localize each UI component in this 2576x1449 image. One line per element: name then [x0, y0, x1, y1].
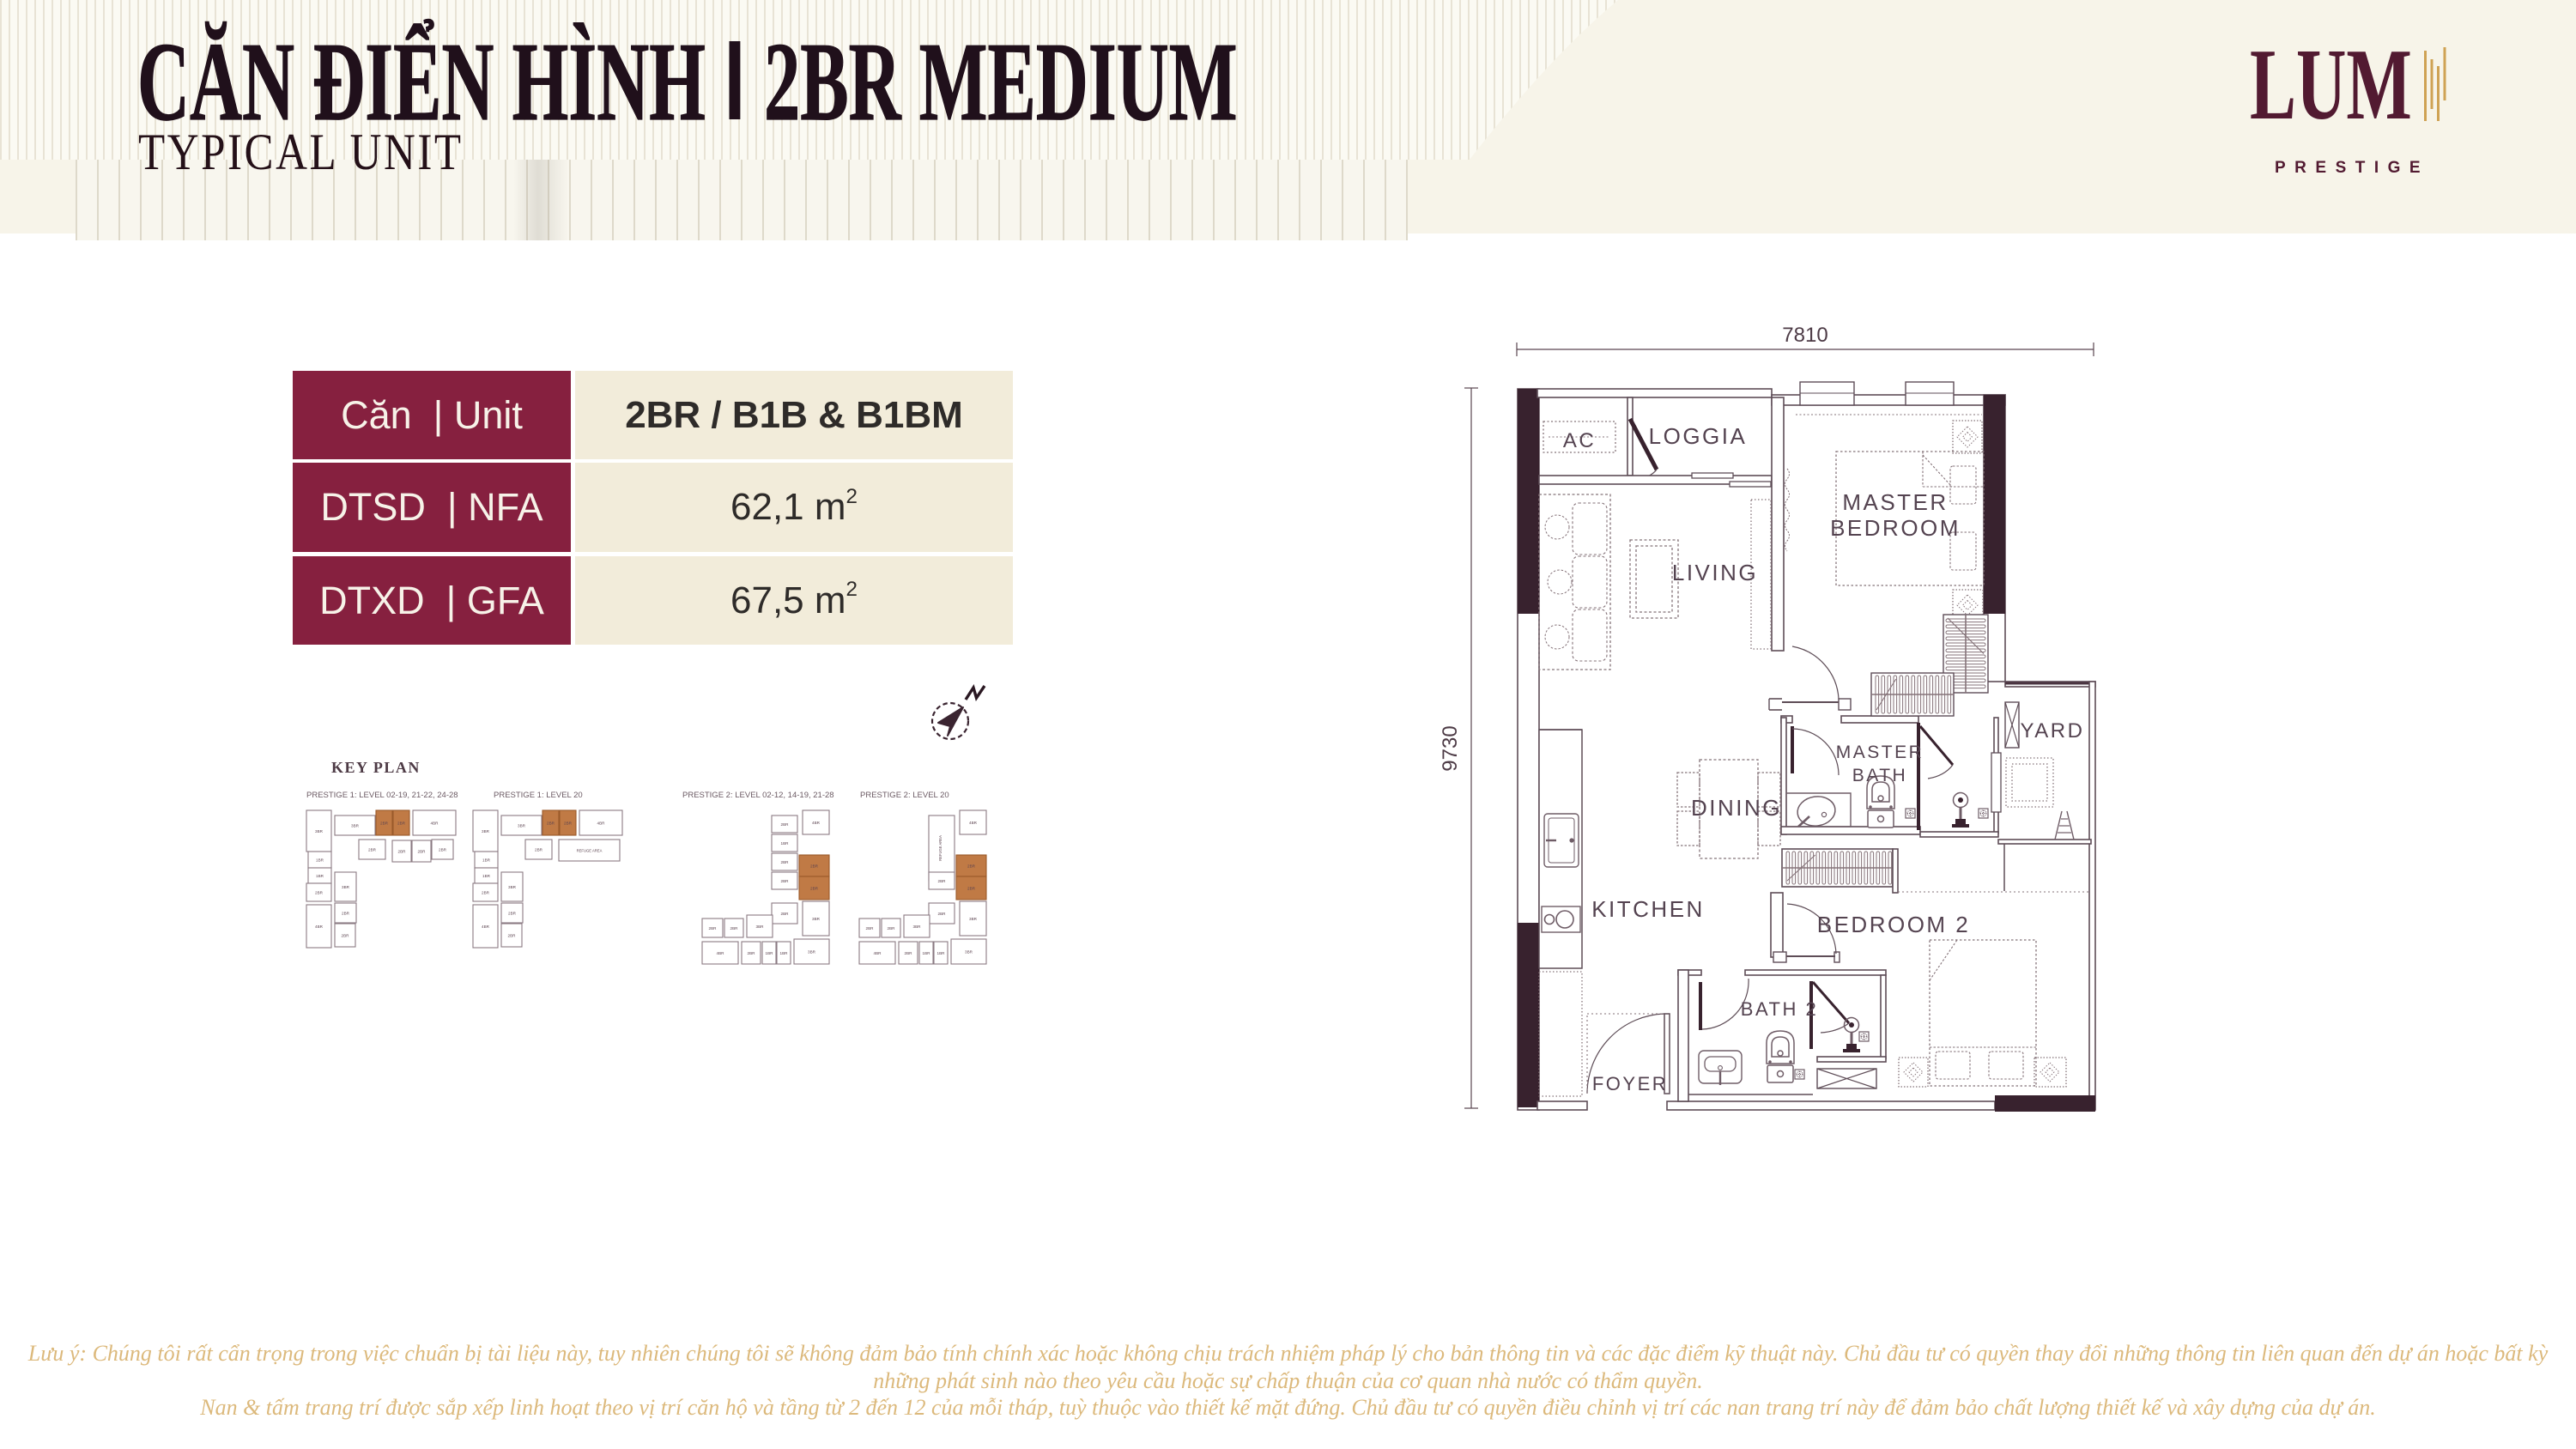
svg-text:2BR: 2BR: [938, 879, 947, 883]
svg-text:2BR: 2BR: [781, 912, 790, 916]
svg-text:2BR: 2BR: [508, 933, 517, 937]
svg-text:3BR: 3BR: [482, 829, 490, 834]
svg-text:2BR: 2BR: [315, 890, 324, 894]
svg-text:LIVING: LIVING: [1672, 560, 1758, 585]
svg-text:REFUGE AREA: REFUGE AREA: [938, 835, 943, 861]
svg-text:2BR: 2BR: [508, 911, 517, 915]
svg-text:2BR: 2BR: [938, 912, 947, 916]
svg-text:3BR: 3BR: [518, 823, 526, 828]
svg-text:9730: 9730: [1442, 725, 1462, 771]
svg-text:3BR: 3BR: [812, 917, 821, 921]
svg-text:3BR: 3BR: [315, 829, 324, 834]
svg-text:1BR: 1BR: [923, 951, 931, 955]
svg-text:2BR: 2BR: [967, 886, 976, 890]
svg-text:REFUGE AREA: REFUGE AREA: [577, 848, 603, 852]
svg-text:2BR: 2BR: [397, 821, 406, 825]
svg-text:3BR: 3BR: [808, 949, 816, 954]
svg-text:2BR: 2BR: [342, 933, 350, 937]
svg-text:1BR: 1BR: [482, 858, 491, 862]
svg-text:2BR: 2BR: [967, 864, 976, 868]
svg-text:1BR: 1BR: [316, 858, 324, 862]
svg-text:2BR: 2BR: [781, 822, 790, 827]
svg-text:3BR: 3BR: [351, 823, 360, 828]
svg-text:DINING: DINING: [1691, 795, 1782, 821]
svg-text:3BR: 3BR: [756, 925, 765, 929]
svg-text:4BR: 4BR: [315, 925, 324, 929]
svg-text:MASTER: MASTER: [1836, 743, 1924, 762]
svg-text:2BR: 2BR: [866, 926, 875, 931]
svg-text:2BR: 2BR: [888, 926, 896, 931]
svg-text:2BR: 2BR: [398, 849, 407, 853]
svg-text:2BR: 2BR: [709, 926, 718, 931]
svg-text:2BR: 2BR: [482, 890, 490, 894]
svg-text:4BR: 4BR: [812, 821, 821, 825]
svg-text:4BR: 4BR: [431, 821, 439, 825]
svg-text:3BR: 3BR: [913, 925, 922, 929]
svg-text:2BR: 2BR: [564, 821, 573, 825]
svg-text:LOGGIA: LOGGIA: [1649, 423, 1748, 449]
svg-text:1BR: 1BR: [781, 841, 790, 846]
svg-text:4BR: 4BR: [969, 821, 978, 825]
svg-text:BATH: BATH: [1852, 766, 1907, 785]
svg-text:MASTER: MASTER: [1842, 489, 1948, 515]
svg-text:BATH 2: BATH 2: [1741, 998, 1818, 1020]
svg-text:4BR: 4BR: [717, 951, 725, 955]
svg-text:1BR: 1BR: [780, 951, 789, 955]
svg-text:BEDROOM 2: BEDROOM 2: [1817, 912, 1971, 937]
svg-text:4BR: 4BR: [482, 925, 490, 929]
svg-text:AC: AC: [1563, 429, 1596, 452]
svg-text:2BR: 2BR: [418, 849, 427, 853]
svg-text:3BR: 3BR: [965, 949, 973, 954]
svg-text:1BR: 1BR: [316, 874, 324, 878]
svg-text:3BR: 3BR: [969, 917, 978, 921]
svg-text:3BR: 3BR: [508, 885, 517, 889]
svg-text:2BR: 2BR: [748, 951, 756, 955]
svg-text:YARD: YARD: [2021, 719, 2085, 743]
svg-text:1BR: 1BR: [766, 951, 774, 955]
svg-text:2BR: 2BR: [781, 879, 790, 883]
svg-text:KITCHEN: KITCHEN: [1591, 896, 1705, 922]
svg-text:2BR: 2BR: [905, 951, 913, 955]
svg-text:2BR: 2BR: [730, 926, 739, 931]
svg-text:3BR: 3BR: [342, 885, 350, 889]
svg-text:2BR: 2BR: [810, 864, 819, 868]
svg-text:2BR: 2BR: [368, 847, 377, 852]
svg-text:FOYER: FOYER: [1592, 1073, 1668, 1094]
svg-text:2BR: 2BR: [439, 847, 447, 852]
svg-text:1BR: 1BR: [937, 951, 946, 955]
svg-text:2BR: 2BR: [380, 821, 389, 825]
svg-text:2BR: 2BR: [547, 821, 555, 825]
svg-text:2BR: 2BR: [781, 860, 790, 864]
svg-text:2BR: 2BR: [810, 886, 819, 890]
svg-text:1BR: 1BR: [482, 874, 491, 878]
svg-text:2BR: 2BR: [535, 847, 543, 852]
svg-text:4BR: 4BR: [874, 951, 882, 955]
svg-text:2BR: 2BR: [342, 911, 350, 915]
svg-text:4BR: 4BR: [597, 821, 606, 825]
svg-text:7810: 7810: [1782, 326, 1827, 347]
svg-text:BEDROOM: BEDROOM: [1830, 515, 1961, 541]
